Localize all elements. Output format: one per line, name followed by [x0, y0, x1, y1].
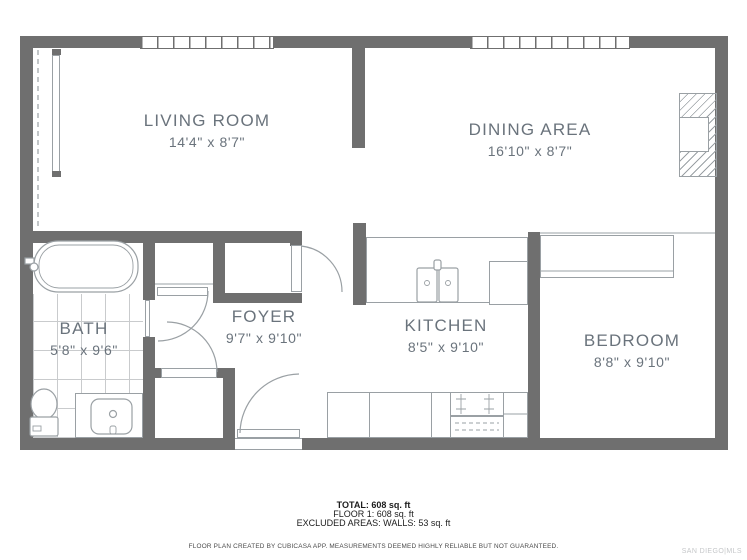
room-label-bath: BATH 5'8" x 9'6": [23, 318, 145, 361]
entry-door-leaf: [237, 429, 300, 438]
window-symbol: [470, 36, 630, 49]
room-dims: 9'7" x 9'10": [182, 327, 346, 349]
wall-closet2-right-stub: [290, 231, 302, 246]
area-summary: TOTAL: 608 sq. ft FLOOR 1: 608 sq. ft EX…: [0, 501, 747, 528]
wall-bottom: [20, 438, 727, 450]
refrigerator: [489, 261, 528, 305]
room-dims: 5'8" x 9'6": [23, 339, 145, 361]
room-label-living: LIVING ROOM 14'4" x 8'7": [107, 110, 307, 153]
closet3-door-leaf: [161, 368, 217, 378]
wall-kitchen-bedroom: [528, 232, 540, 450]
room-label-bedroom: BEDROOM 8'8" x 9'10": [548, 330, 716, 373]
entry-door-threshold: [235, 438, 302, 450]
wall-living-dining-divider: [352, 36, 365, 148]
sliding-door-cap: [52, 49, 61, 55]
closet1-door-leaf: [157, 287, 208, 296]
window-symbol: [140, 36, 274, 49]
wall-bath-upper: [143, 231, 155, 300]
room-label-kitchen: KITCHEN 8'5" x 9'10": [364, 315, 528, 358]
room-dims: 8'8" x 9'10": [548, 351, 716, 373]
room-name: BEDROOM: [548, 330, 716, 351]
wall-closet2-bottom: [213, 293, 302, 303]
wall-living-bottom: [20, 231, 302, 243]
sliding-door-panel: [52, 55, 60, 172]
room-name: DINING AREA: [430, 119, 630, 140]
room-label-dining: DINING AREA 16'10" x 8'7": [430, 119, 630, 162]
dishwasher: [369, 392, 432, 438]
room-name: KITCHEN: [364, 315, 528, 336]
bed: [540, 235, 674, 278]
excluded-area: EXCLUDED AREAS: WALLS: 53 sq. ft: [0, 519, 747, 528]
wall-left: [20, 36, 33, 450]
sliding-door-cap: [52, 171, 61, 177]
floor-plan: LIVING ROOM 14'4" x 8'7" DINING AREA 16'…: [0, 0, 747, 560]
fireplace-firebox: [679, 117, 709, 152]
disclaimer-text: FLOOR PLAN CREATED BY CUBICASA APP. MEAS…: [0, 543, 747, 550]
bathtub: [25, 241, 138, 292]
wall-closet3-right: [223, 368, 235, 450]
room-dims: 8'5" x 9'10": [364, 336, 528, 358]
stove: [450, 392, 504, 416]
room-dims: 16'10" x 8'7": [430, 140, 630, 162]
bath-pocket-door: [145, 300, 150, 337]
bath-vanity: [75, 393, 143, 438]
room-dims: 14'4" x 8'7": [107, 131, 307, 153]
mls-watermark: SAN DIEGO|MLS: [682, 548, 742, 555]
room-name: BATH: [23, 318, 145, 339]
oven: [450, 416, 504, 438]
closet2-door-leaf: [291, 245, 302, 292]
room-name: LIVING ROOM: [107, 110, 307, 131]
room-label-foyer: FOYER 9'7" x 9'10": [182, 306, 346, 349]
wall-kitchen-left: [353, 223, 366, 305]
room-name: FOYER: [182, 306, 346, 327]
